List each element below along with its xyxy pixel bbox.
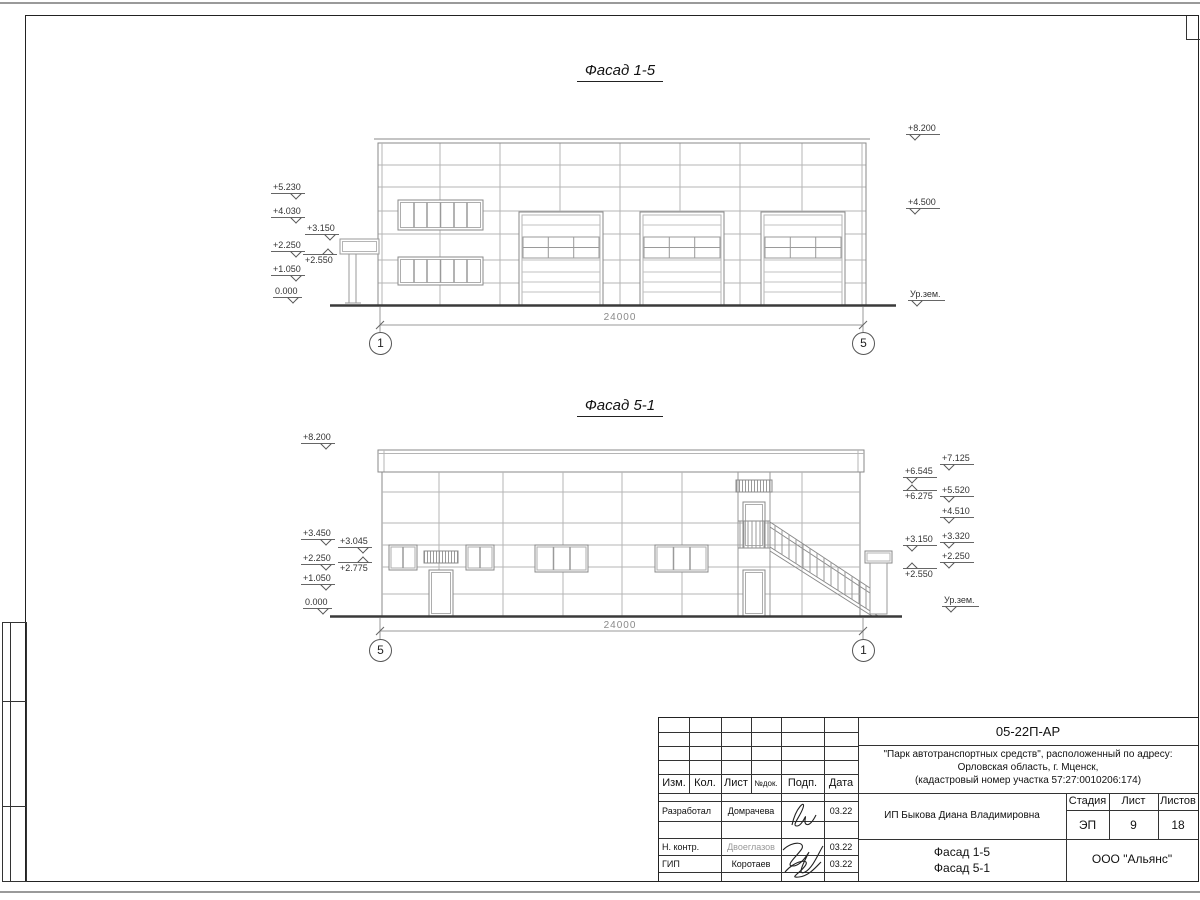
row-date: 03.22 (824, 806, 858, 816)
elevation-mark: +4.510 (940, 506, 974, 522)
facade-5-1-title-text: Фасад 5-1 (577, 397, 663, 417)
facade-5-1-drawing (330, 440, 910, 670)
window-2 (466, 545, 494, 570)
drawing-sheet: Фасад 1-5 (0, 0, 1200, 900)
ribbon-window-upper (398, 200, 483, 230)
upper-door (743, 502, 765, 548)
elevation-mark: +2.250 (271, 240, 305, 256)
client: ИП Быкова Диана Владимировна (858, 810, 1066, 821)
right-porch (865, 551, 892, 614)
doc-number: 05-22П-АР (858, 724, 1198, 739)
sheets-label: Листов (1158, 795, 1198, 807)
entrance-door-canopy (424, 551, 458, 563)
col-ndok: №док. (751, 779, 781, 788)
elevation-mark: +8.200 (906, 123, 940, 139)
row-name: Двоеглазов (721, 842, 781, 852)
frame-corner-box (1186, 16, 1200, 40)
elevation-mark: +4.500 (906, 197, 940, 213)
col-podp: Подп. (781, 777, 824, 789)
row-role: ГИП (662, 859, 680, 869)
window-1 (389, 545, 417, 570)
sheet-edge-top (0, 2, 1200, 4)
sheet-number: 9 (1109, 818, 1158, 832)
row-name: Коротаев (721, 859, 781, 869)
elevation-mark: 0.000 (303, 597, 332, 613)
elevation-mark: +6.275 (903, 486, 937, 502)
row-name: Домрачева (721, 806, 781, 816)
stage-value: ЭП (1066, 818, 1109, 832)
col-kol: Кол. (689, 777, 721, 789)
axis-bubble-5: 5 (369, 639, 392, 662)
elevation-mark: +3.150 (305, 223, 339, 239)
drawing-title-2: Фасад 5-1 (858, 861, 1066, 875)
garage-door-1 (519, 212, 603, 305)
elevation-mark: +1.050 (301, 573, 335, 589)
dimension-label: 24000 (580, 312, 660, 323)
elevation-mark: +7.125 (940, 453, 974, 469)
garage-door-3 (761, 212, 845, 305)
elevation-mark: +2.250 (301, 553, 335, 569)
elevation-mark: +2.775 (338, 558, 372, 574)
elevation-mark: 0.000 (273, 286, 302, 302)
elevation-mark: +1.050 (271, 264, 305, 280)
elevation-mark: +3.045 (338, 536, 372, 552)
signature-1 (782, 795, 824, 837)
row-role: Н. контр. (662, 842, 699, 852)
left-margin-stamp (2, 622, 27, 882)
dimension-label: 24000 (580, 620, 660, 631)
external-staircase (770, 522, 878, 616)
axis-bubble-1: 1 (852, 639, 875, 662)
company: ООО "Альянс" (1066, 852, 1198, 866)
elevation-mark: Ур.зем. (942, 595, 979, 611)
row-date: 03.22 (824, 842, 858, 852)
axis-bubble-5: 5 (852, 332, 875, 355)
col-izm: Изм. (659, 777, 689, 789)
col-data: Дата (824, 777, 858, 789)
drawing-title-1: Фасад 1-5 (858, 845, 1066, 859)
col-list: Лист (721, 777, 751, 789)
elevation-mark: +5.520 (940, 485, 974, 501)
sheets-total: 18 (1158, 818, 1198, 832)
elevation-mark: +3.150 (903, 534, 937, 550)
elevation-mark: +6.545 (903, 466, 937, 482)
upper-door-canopy (736, 480, 772, 492)
panel-joints (382, 472, 860, 616)
entrance-door (429, 570, 453, 616)
elevation-mark: +3.450 (301, 528, 335, 544)
elevation-mark: +5.230 (271, 182, 305, 198)
elevation-mark: +2.250 (940, 551, 974, 567)
stamp-divider (3, 701, 26, 702)
row-date: 03.22 (824, 859, 858, 869)
axis-bubble-1: 1 (369, 332, 392, 355)
elevation-mark: +2.550 (903, 564, 937, 580)
lower-door (743, 570, 765, 616)
window-4 (655, 545, 708, 572)
sheet-edge-bottom (0, 891, 1200, 893)
facade-5-1-title: Фасад 5-1 (540, 397, 700, 417)
stamp-divider (10, 623, 11, 881)
facade-1-5-title-text: Фасад 1-5 (577, 62, 663, 82)
left-porch (340, 239, 379, 303)
ribbon-window-lower (398, 257, 483, 285)
title-block: Изм. Кол. Лист №док. Подп. Дата Разработ… (658, 717, 1199, 882)
window-3 (535, 545, 588, 572)
garage-door-2 (640, 212, 724, 305)
elevation-mark: +3.320 (940, 531, 974, 547)
project-line1: "Парк автотранспортных средств", располо… (861, 749, 1195, 760)
elevation-mark: +8.200 (301, 432, 335, 448)
project-line3: (кадастровый номер участка 57:27:0010206… (861, 775, 1195, 786)
elevation-mark: Ур.зем. (908, 289, 945, 305)
elevation-mark: +4.030 (271, 206, 305, 222)
parapet-band (378, 450, 864, 472)
project-line2: Орловская область, г. Мценск, (861, 762, 1195, 773)
stage-label: Стадия (1066, 795, 1109, 807)
elevation-mark: +2.550 (303, 250, 337, 266)
stamp-divider (3, 806, 26, 807)
signature-2 (777, 836, 827, 880)
sheet-label: Лист (1109, 795, 1158, 807)
facade-1-5-title: Фасад 1-5 (540, 62, 700, 82)
row-role: Разработал (662, 806, 711, 816)
